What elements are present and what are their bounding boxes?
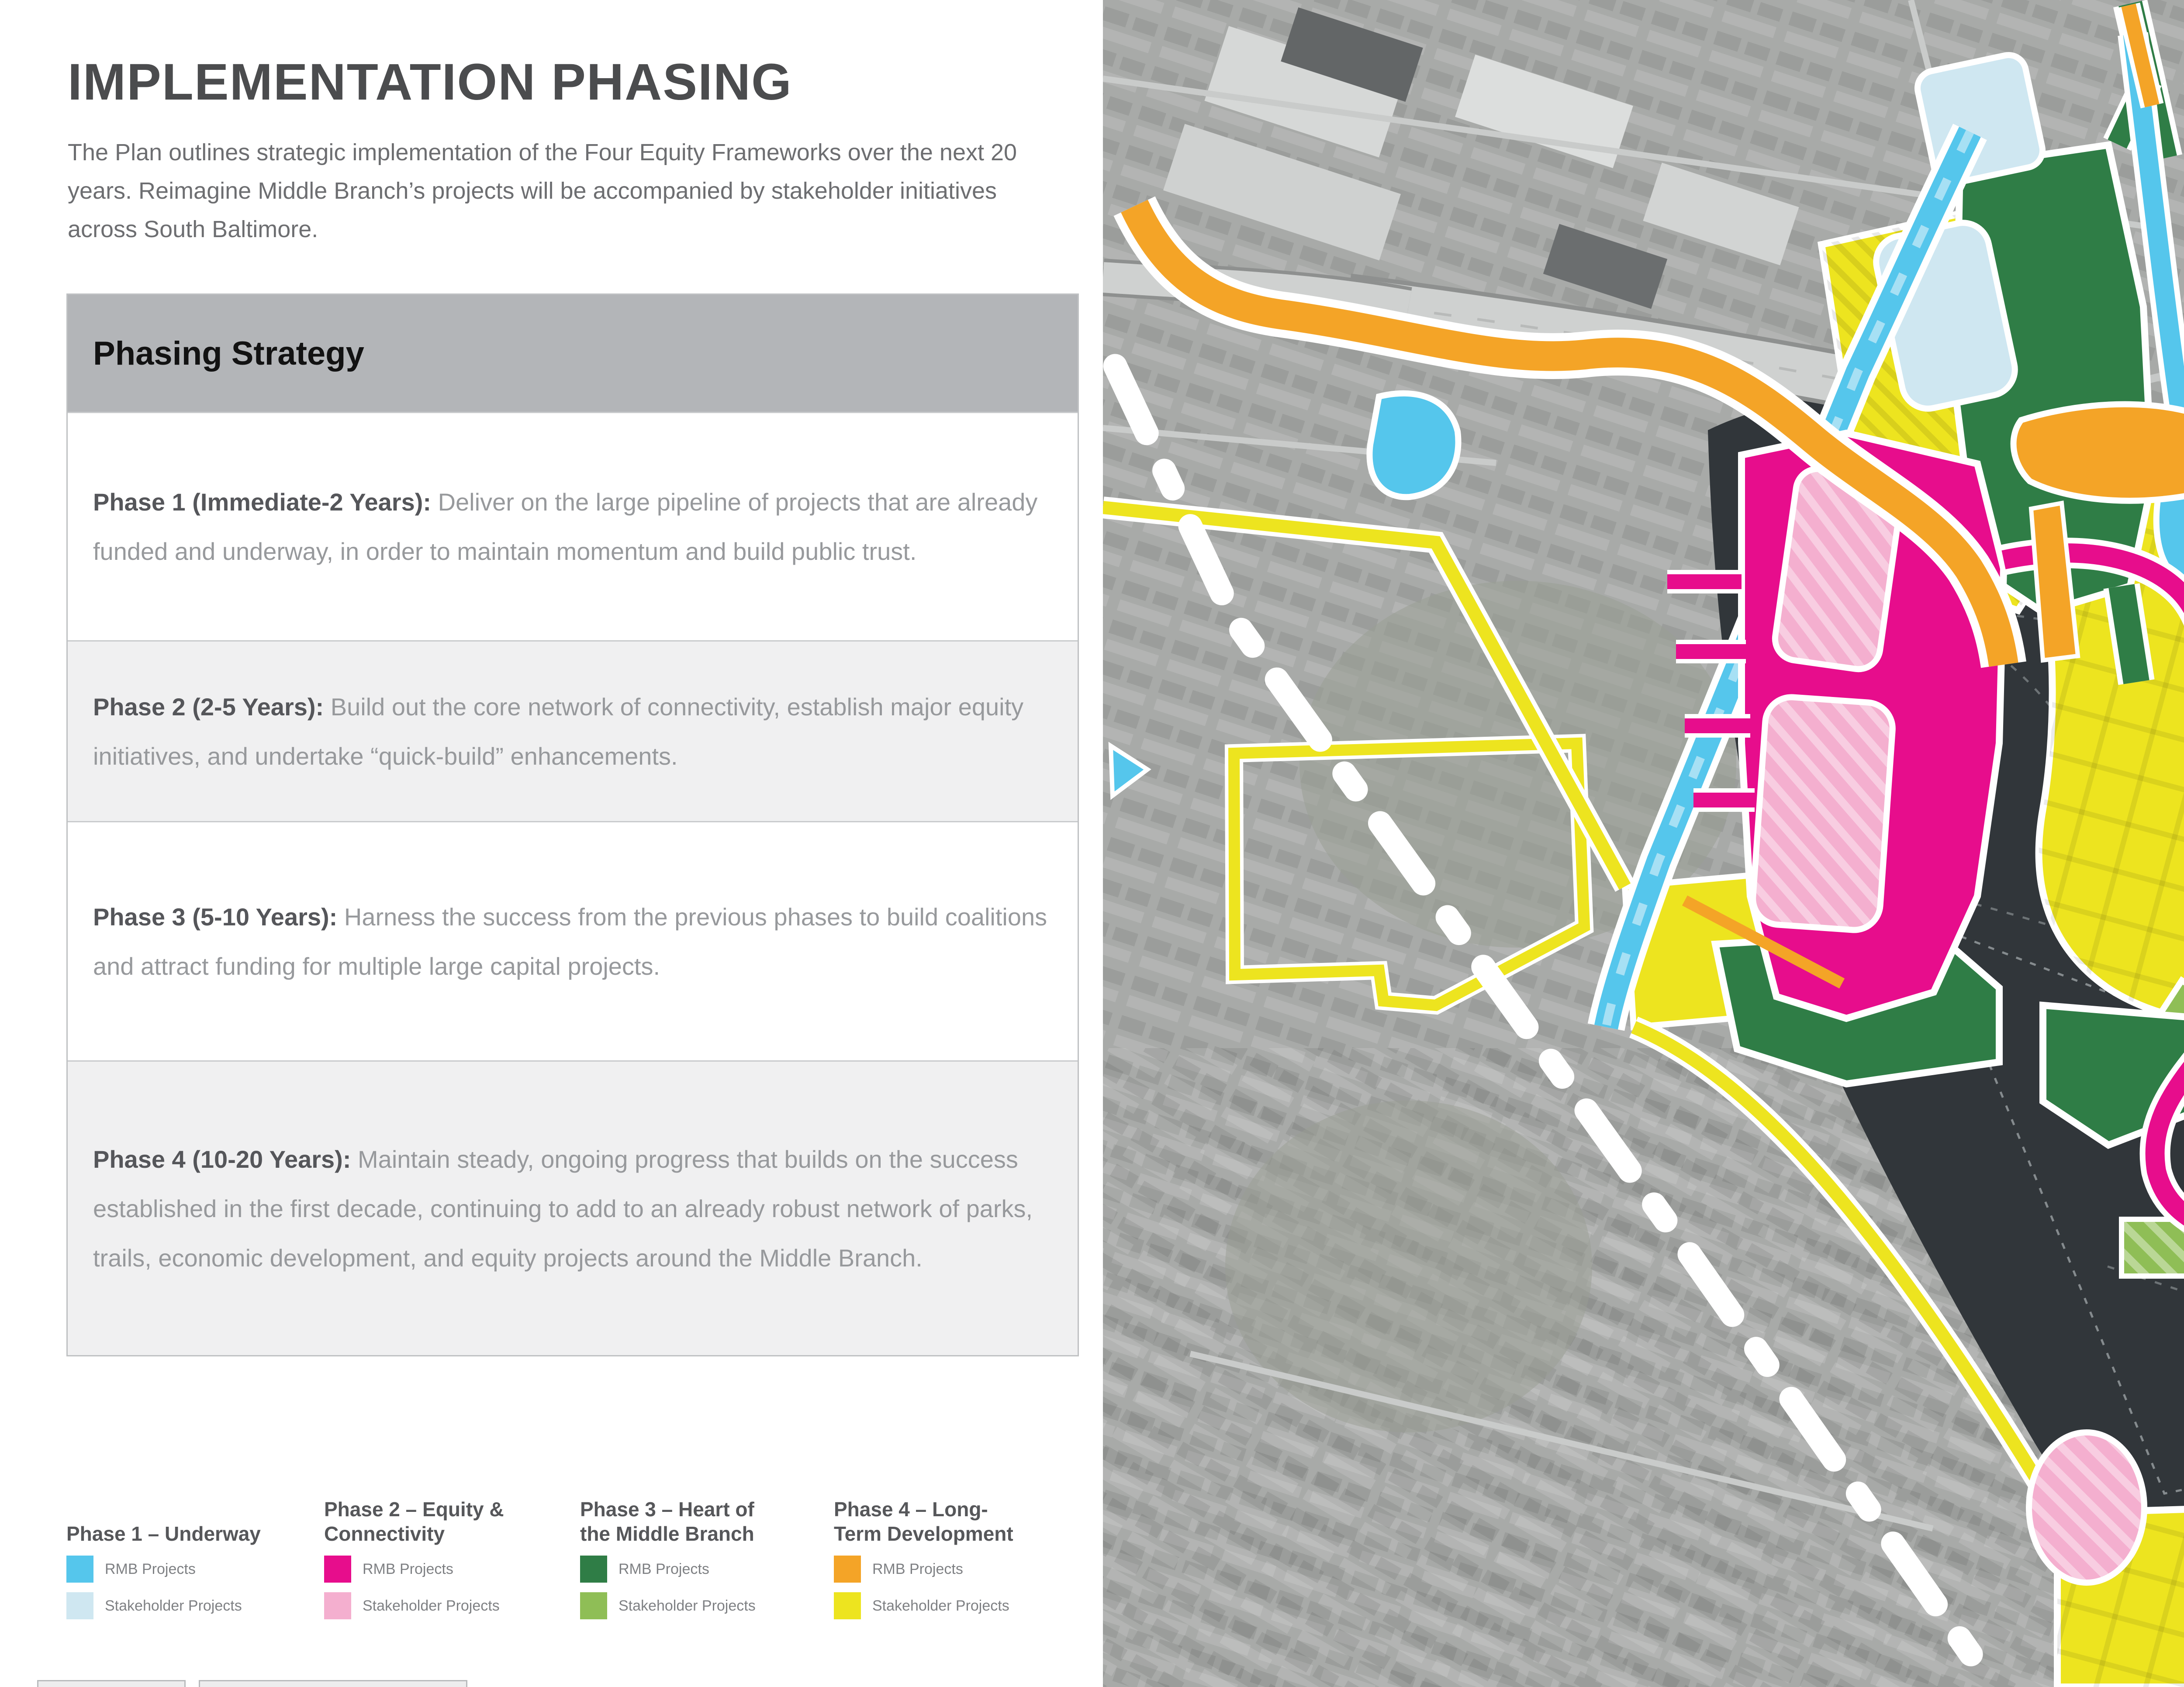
phase-1-lead: Phase 1 (Immediate-2 Years): [93,488,431,516]
map-svg [1103,0,2184,1687]
legend-phase-3: Phase 3 – Heart of the Middle Branch RMB… [580,1480,785,1619]
phase-3-rmb-swatch [580,1556,607,1583]
phasing-strategy-header: Phasing Strategy [68,295,1078,412]
phase-2-rmb-swatch [324,1556,351,1583]
legend-phase-4: Phase 4 – Long-Term Development RMB Proj… [834,1480,1017,1619]
legend-phase-4-rmb: RMB Projects [834,1556,1017,1583]
overlay-orange-north [2014,404,2184,501]
overlay-blue-blob-west [1369,393,1458,497]
legend-phase-4-title: Phase 4 – Long-Term Development [834,1480,1017,1546]
intro-paragraph: The Plan outlines strategic implementati… [68,133,1024,248]
legend-label: RMB Projects [872,1561,963,1578]
legend-label: RMB Projects [363,1561,453,1578]
phase-3-stakeholder-swatch [580,1592,607,1619]
phase-2-stakeholder-swatch [324,1592,351,1619]
legend-phase-2-stakeholder: Stakeholder Projects [324,1592,529,1619]
phase-4-rmb-swatch [834,1556,861,1583]
legend-label: Stakeholder Projects [872,1597,1009,1615]
phase-4-lead: Phase 4 (10-20 Years): [93,1145,351,1173]
legend-label: Stakeholder Projects [105,1597,242,1615]
phase-4-row: Phase 4 (10-20 Years): Maintain steady, … [68,1060,1078,1355]
phase-3-row: Phase 3 (5-10 Years): Harness the succes… [68,821,1078,1060]
phase-1-row: Phase 1 (Immediate-2 Years): Deliver on … [68,412,1078,640]
page-title: IMPLEMENTATION PHASING [68,52,792,112]
phase-4-stakeholder-swatch [834,1592,861,1619]
legend-phase-2-rmb: RMB Projects [324,1556,529,1583]
cutoff-box [37,1680,186,1687]
phasing-strategy-title: Phasing Strategy [93,335,364,373]
legend-label: RMB Projects [105,1561,196,1578]
legend-label: Stakeholder Projects [363,1597,500,1615]
legend-phase-3-stakeholder: Stakeholder Projects [580,1592,785,1619]
legend-phase-2: Phase 2 – Equity & Connectivity RMB Proj… [324,1480,529,1619]
legend-label: RMB Projects [619,1561,709,1578]
legend-phase-1-title: Phase 1 – Underway [66,1480,285,1546]
cutoff-box [199,1680,467,1687]
legend-phase-1: Phase 1 – Underway RMB Projects Stakehol… [66,1480,285,1619]
legend-label: Stakeholder Projects [619,1597,756,1615]
legend-phase-1-rmb: RMB Projects [66,1556,285,1583]
phase-1-rmb-swatch [66,1556,93,1583]
map-aerial [1103,0,2184,1687]
phase-1-stakeholder-swatch [66,1592,93,1619]
legend-phase-2-title: Phase 2 – Equity & Connectivity [324,1480,529,1546]
left-panel: IMPLEMENTATION PHASING The Plan outlines… [0,0,1103,1687]
phase-2-row: Phase 2 (2-5 Years): Build out the core … [68,640,1078,821]
map-legend: Phase 1 – Underway RMB Projects Stakehol… [0,1480,1103,1664]
legend-phase-4-stakeholder: Stakeholder Projects [834,1592,1017,1619]
legend-phase-1-stakeholder: Stakeholder Projects [66,1592,285,1619]
phase-2-lead: Phase 2 (2-5 Years): [93,693,324,721]
phase-3-lead: Phase 3 (5-10 Years): [93,903,337,931]
legend-phase-3-title: Phase 3 – Heart of the Middle Branch [580,1480,785,1546]
phasing-strategy-table: Phasing Strategy Phase 1 (Immediate-2 Ye… [66,293,1079,1356]
legend-phase-3-rmb: RMB Projects [580,1556,785,1583]
